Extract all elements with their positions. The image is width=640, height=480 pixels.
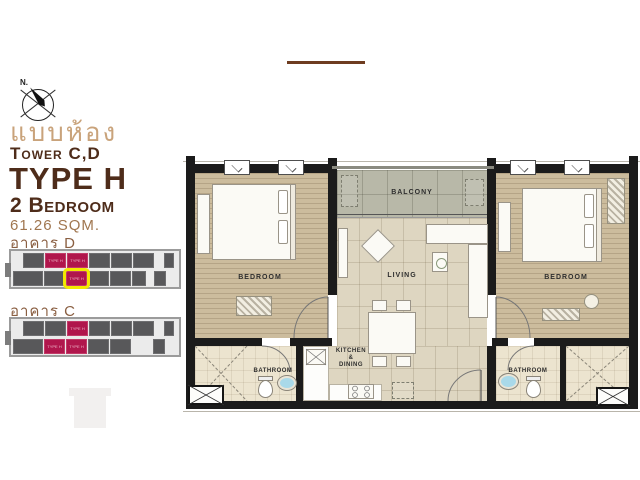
keyplan-unit: [154, 271, 166, 286]
wall: [186, 164, 332, 173]
sliding-door: [337, 217, 487, 218]
wardrobe-right: [607, 178, 625, 224]
keyplan-tab: [5, 331, 11, 345]
dresser-left: [197, 194, 210, 254]
balcony-railing: [332, 166, 494, 169]
keyplan-unit-type-h: TYPE H: [66, 271, 87, 286]
keyplan-unit: [88, 271, 109, 286]
door-arc-bedroom-left: [294, 297, 328, 338]
bathroom-sink: [499, 374, 518, 389]
base-line: [183, 411, 640, 412]
keyplan-unit: [89, 321, 110, 336]
refrigerator: [392, 382, 414, 399]
bathroom-right-label: BATHROOM: [500, 368, 556, 374]
wall: [328, 218, 337, 295]
bedroom-count-label: 2 Bedroom: [10, 194, 115, 218]
toilet: [526, 380, 541, 398]
floor-plan: BALCONY LIVING BEDROOM BEDROOM BATHROOM …: [186, 148, 638, 420]
bedroom-right-label: BEDROOM: [526, 274, 606, 281]
plant-icon: [436, 258, 447, 269]
dining-table: [368, 312, 416, 354]
window-icon: [278, 160, 304, 175]
keyplan-tab: [5, 263, 11, 277]
bathroom-left-label: BATHROOM: [250, 368, 296, 374]
keyplan-unit: [110, 271, 131, 286]
pillow: [584, 224, 594, 248]
keyplan-unit: [155, 321, 163, 336]
keyplan-unit: [155, 253, 163, 268]
keyplan-unit: [111, 321, 132, 336]
keyplan-unit-type-h: TYPE H: [67, 253, 88, 268]
window-icon: [224, 160, 250, 175]
bedroom-left-label: BEDROOM: [220, 274, 300, 281]
keyplan-unit: [111, 253, 132, 268]
door-arc-entrance: [448, 370, 481, 401]
wardrobe-left: [236, 296, 272, 316]
wall: [560, 346, 566, 401]
dining-chair: [396, 300, 411, 311]
wall: [296, 346, 303, 401]
keyplan-building-d: TYPE HTYPE H TYPE H: [9, 249, 181, 289]
floorplan-page: N. แบบห้อง Tower C,D TYPE H 2 Bedroom 61…: [0, 0, 640, 480]
keyplan-unit: [147, 271, 153, 286]
bed-right-headboard: [596, 188, 602, 262]
wall: [186, 164, 195, 409]
wall: [492, 338, 508, 346]
keyplan-unit: [133, 253, 154, 268]
keyplan-unit: [153, 339, 165, 354]
keyplan-unit: [110, 339, 131, 354]
keyplan-unit-type-h: TYPE H: [66, 339, 87, 354]
keyplan-unit: [164, 253, 174, 268]
kitchen-label-line: DINING: [328, 362, 374, 369]
wall: [290, 338, 332, 346]
window-icon: [510, 160, 536, 175]
dining-chair: [372, 300, 387, 311]
pillow: [278, 220, 288, 244]
shaft-x-mark: [596, 387, 630, 406]
compass-north-label: N.: [20, 78, 28, 87]
keyplan-unit: [88, 339, 109, 354]
plant-box: [432, 252, 448, 272]
keyplan-unit: [133, 321, 154, 336]
keyplan-unit-type-h: TYPE H: [45, 253, 66, 268]
sliding-door: [337, 214, 487, 215]
dresser-right: [498, 202, 511, 252]
bathroom-sink: [278, 376, 296, 390]
keyplan-unit: [132, 339, 152, 354]
door-arc-bedroom-right: [496, 297, 530, 338]
header-divider-line: [287, 61, 365, 64]
keyplan-building-c: TYPE H TYPE HTYPE H: [9, 317, 181, 357]
keyplan-unit: [132, 271, 146, 286]
keyplan-unit: [164, 321, 174, 336]
wall: [487, 346, 496, 401]
sofa-horizontal: [426, 224, 488, 244]
wall: [534, 338, 629, 346]
living-label: LIVING: [372, 272, 432, 279]
keyplan-unit-type-h: TYPE H: [44, 339, 65, 354]
unit-type-title: TYPE H: [9, 161, 127, 197]
pillow: [584, 194, 594, 218]
stove-burners: [348, 384, 374, 399]
keyplan-unit: [89, 253, 110, 268]
keyplan-unit: [45, 321, 66, 336]
wall: [195, 338, 262, 346]
kitchen-sink-mark: [306, 349, 326, 365]
bed-left-headboard: [290, 184, 296, 260]
sofa-vertical: [468, 244, 488, 318]
wall: [186, 401, 638, 409]
keyplan-unit: [13, 339, 43, 354]
keyplan-unit: [23, 253, 44, 268]
keyplan-unit-type-h: TYPE H: [67, 321, 88, 336]
door-arc-bathroom-right: [508, 346, 534, 370]
wall: [629, 164, 638, 409]
toilet: [258, 380, 273, 398]
keyplan-unit: [23, 321, 44, 336]
tv-cabinet: [338, 228, 348, 278]
kitchen-label-line: KITCHEN: [328, 348, 374, 355]
pillow: [278, 190, 288, 214]
window-icon: [564, 160, 590, 175]
dining-chair: [372, 356, 387, 367]
dining-chair: [396, 356, 411, 367]
balcony-label: BALCONY: [337, 189, 487, 196]
bench-right: [542, 308, 580, 321]
kitchen-dining-label: KITCHEN & DINING: [328, 348, 374, 369]
kitchen-label-line: &: [328, 355, 374, 362]
keyplan-unit: [44, 271, 65, 286]
keyplan-unit: [13, 271, 43, 286]
shaft-x-mark: [188, 385, 224, 405]
watermark: [74, 388, 106, 428]
stool: [584, 294, 599, 309]
wall: [487, 218, 496, 295]
